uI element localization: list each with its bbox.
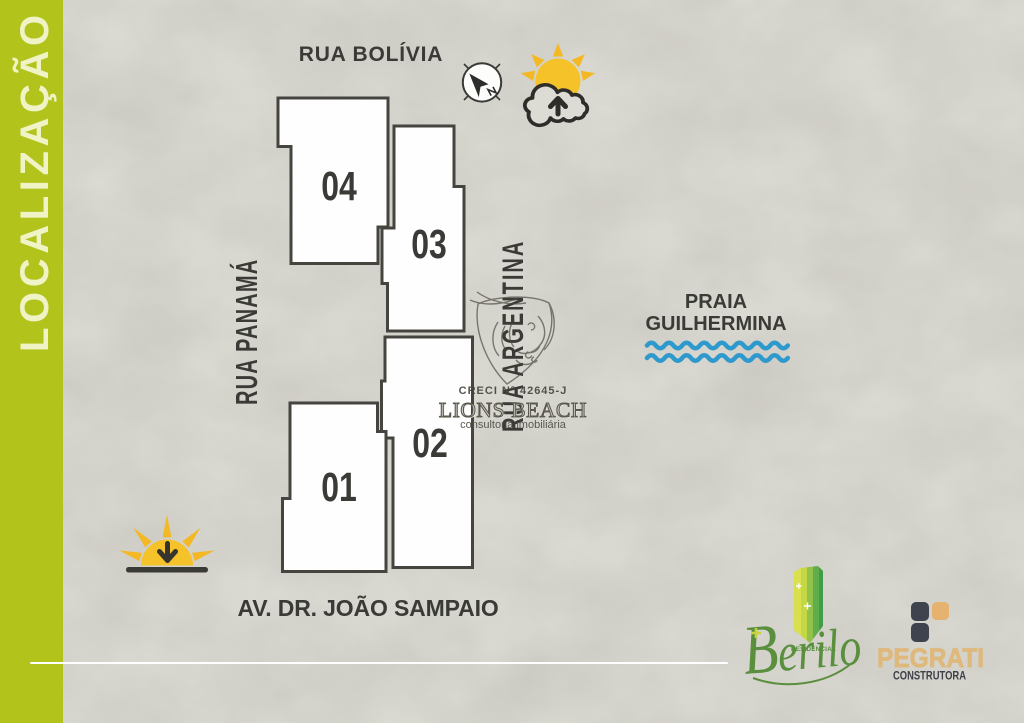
svg-text:CONSTRUTORA: CONSTRUTORA <box>893 671 966 683</box>
svg-text:PEGRATI: PEGRATI <box>877 643 984 673</box>
svg-text:erilo: erilo <box>775 616 864 683</box>
svg-text:B: B <box>740 609 782 689</box>
